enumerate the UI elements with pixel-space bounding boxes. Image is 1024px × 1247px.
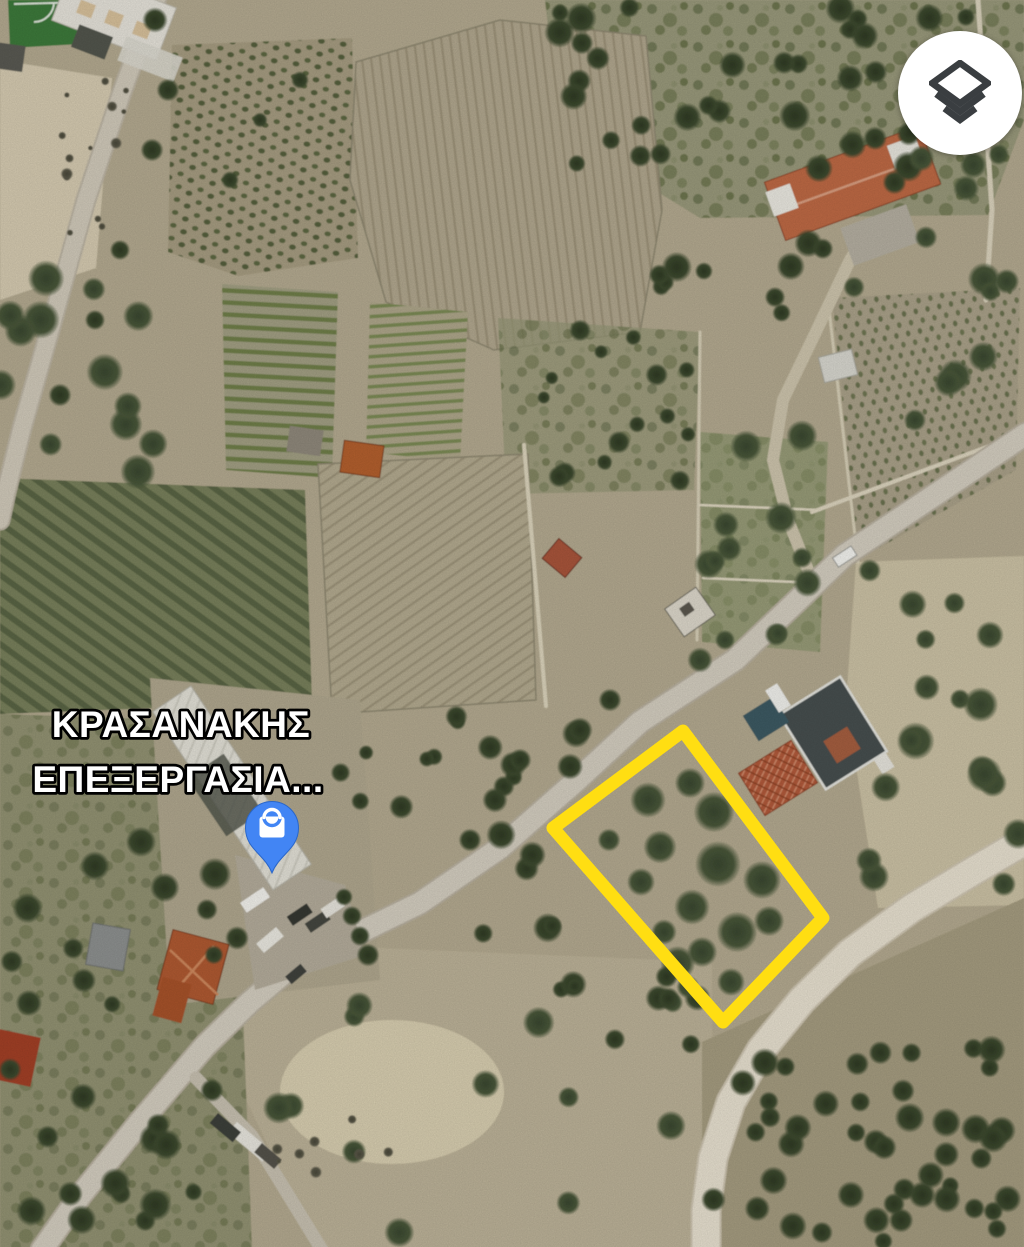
layers-button[interactable] xyxy=(898,31,1022,155)
satellite-map-view: ΚΡΑΣΑΝΑΚΗΣ ΕΠΕΞΕΡΓΑΣΙΑ... xyxy=(0,0,1024,1247)
place-label-line1[interactable]: ΚΡΑΣΑΝΑΚΗΣ xyxy=(52,704,310,745)
satellite-map[interactable]: ΚΡΑΣΑΝΑΚΗΣ ΕΠΕΞΕΡΓΑΣΙΑ... xyxy=(0,0,1024,1247)
layers-icon xyxy=(929,60,991,126)
place-label-line2[interactable]: ΕΠΕΞΕΡΓΑΣΙΑ... xyxy=(32,759,323,800)
image-grain xyxy=(0,0,1024,1247)
